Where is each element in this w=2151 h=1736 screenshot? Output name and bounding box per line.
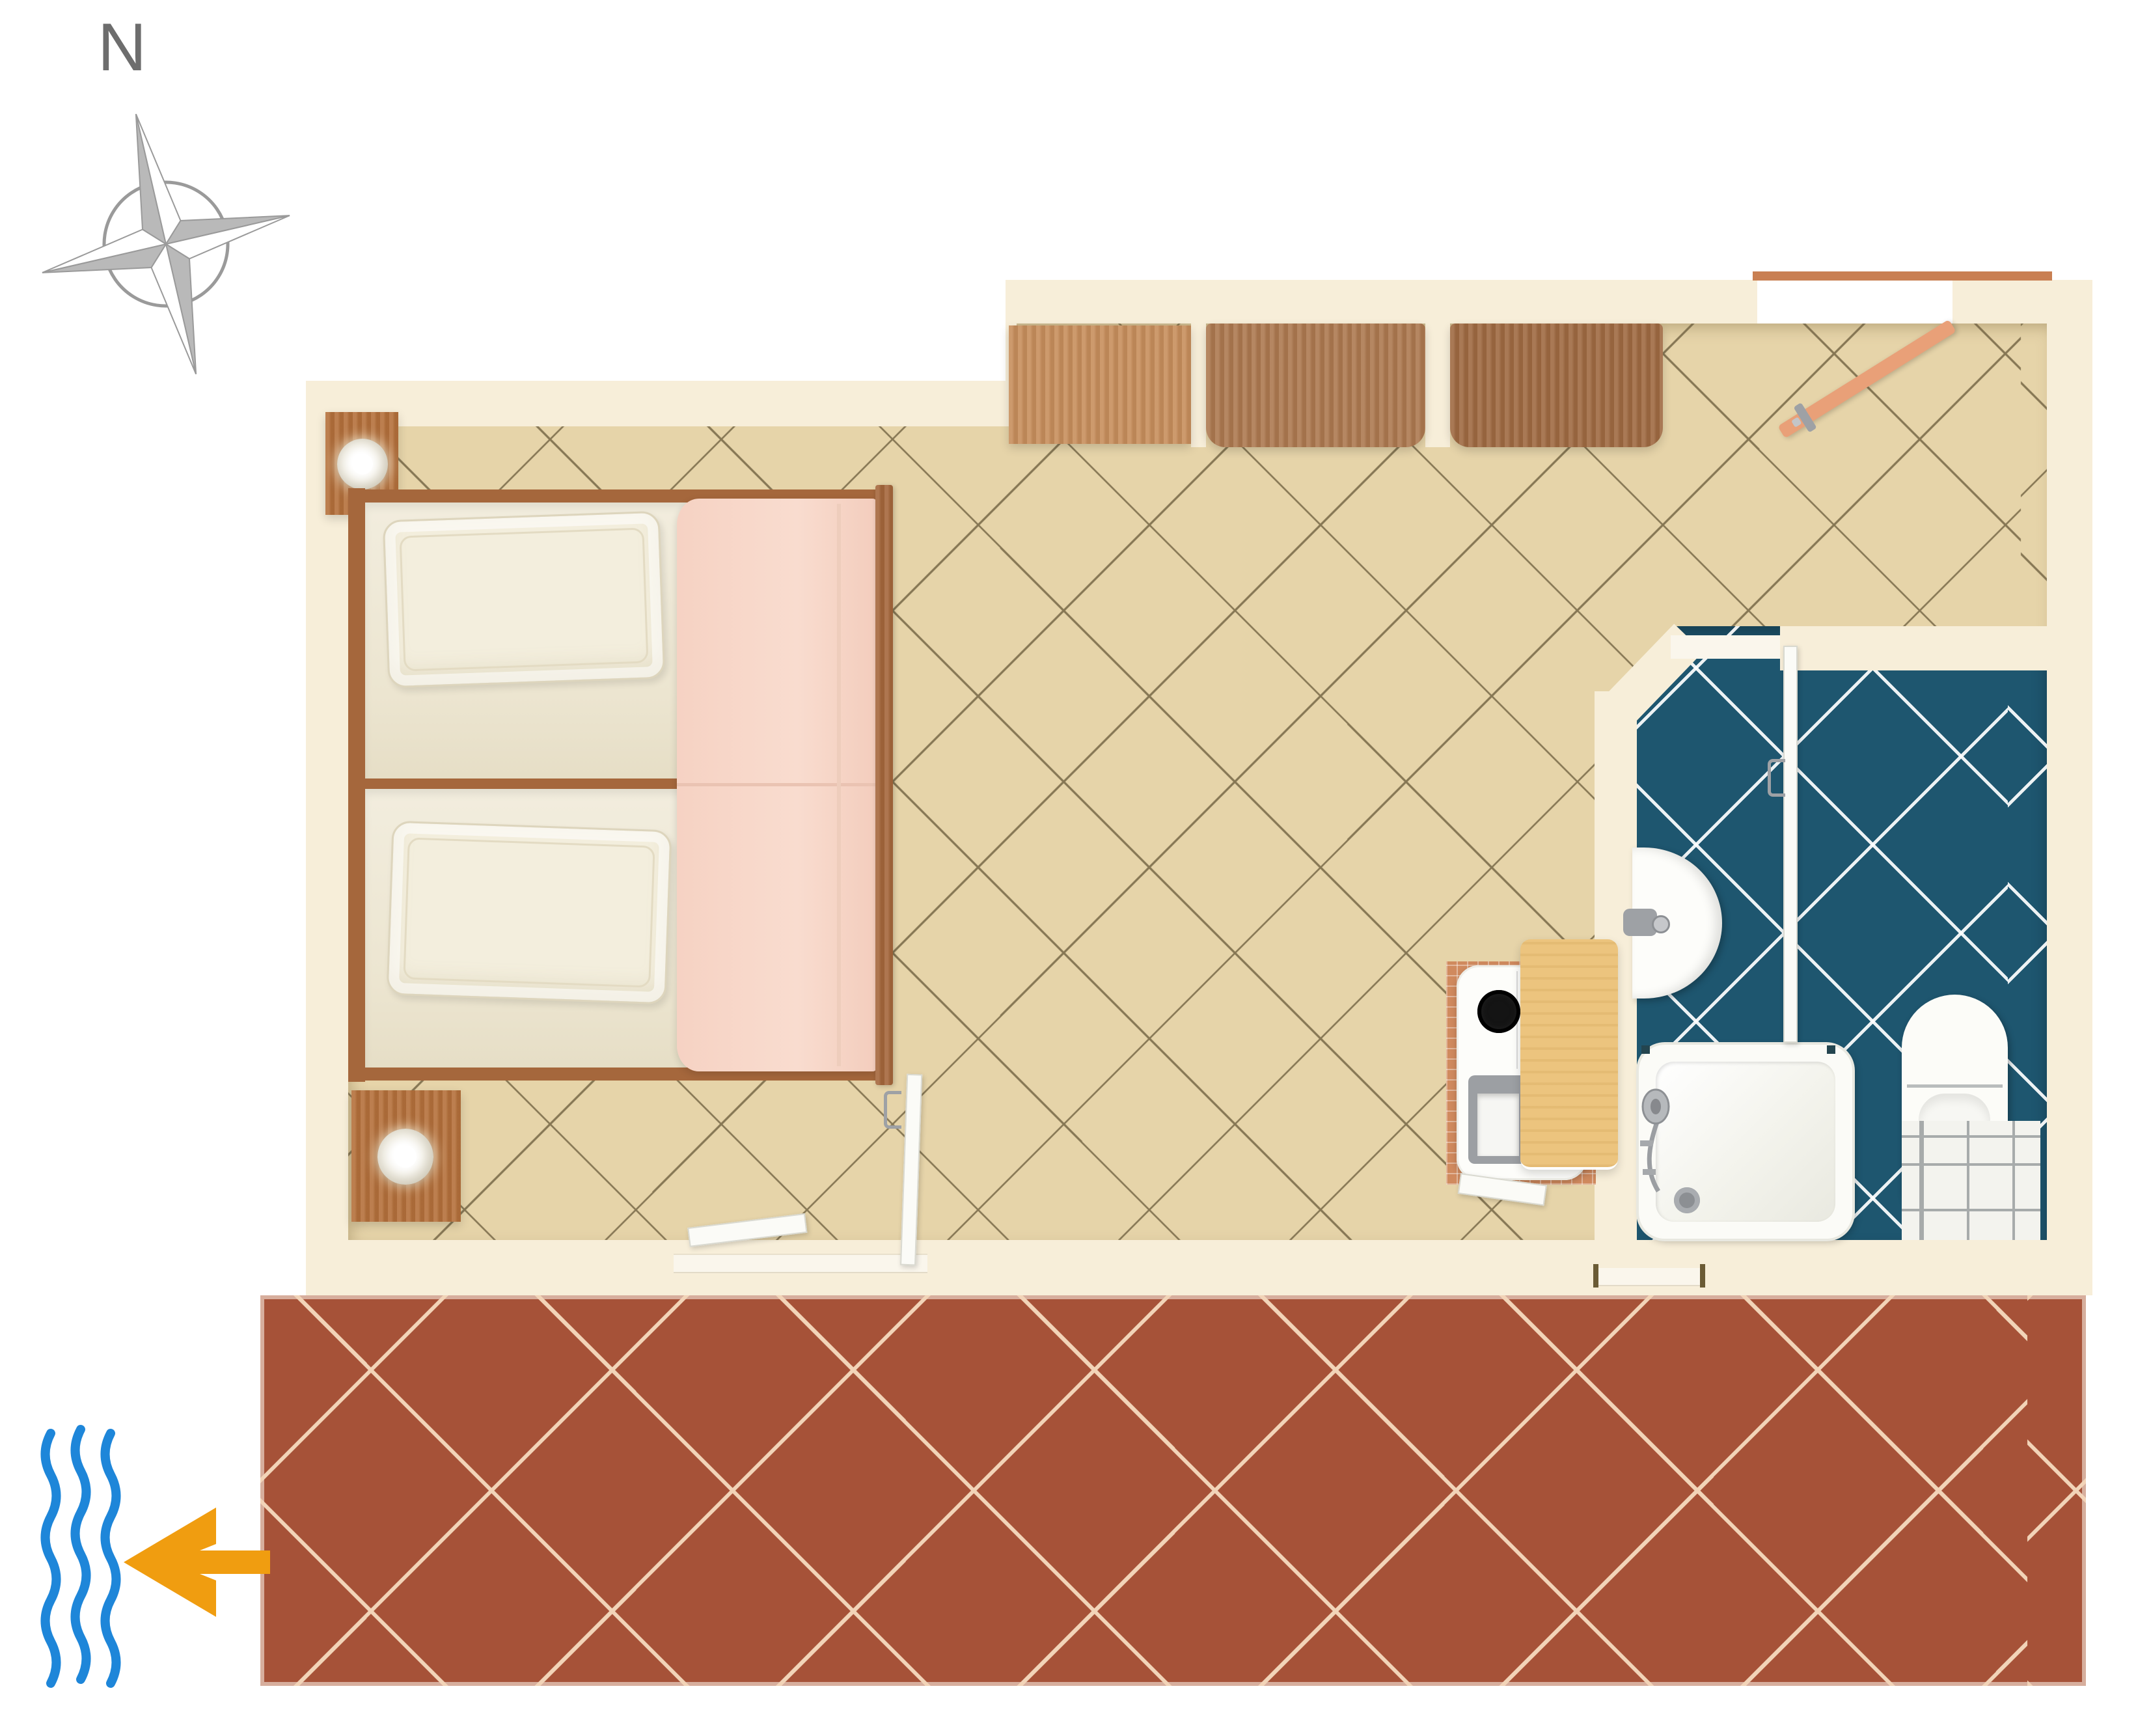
sea-direction-arrow-icon — [124, 1508, 270, 1617]
compass-rose-icon — [12, 85, 320, 402]
shower-head-icon — [1640, 1090, 1669, 1191]
floor-plan-canvas: N — [0, 0, 2151, 1736]
compass-star — [12, 85, 320, 402]
sea-waves-icon — [46, 1429, 116, 1683]
symbol-overlay — [0, 0, 2151, 1736]
